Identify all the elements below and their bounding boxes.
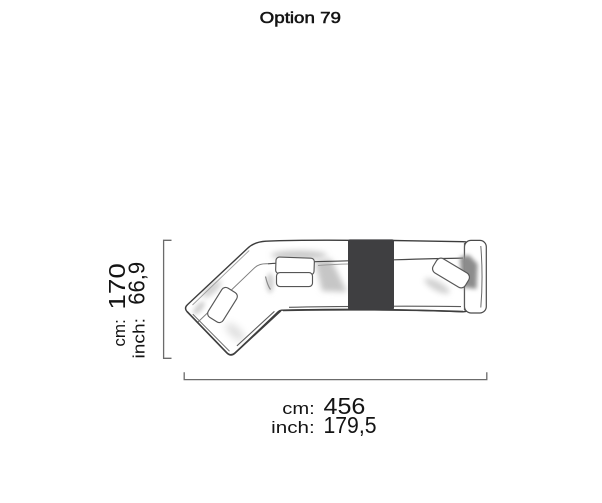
svg-text:inch:: inch: [130, 318, 149, 359]
svg-text:66,9: 66,9 [124, 262, 150, 305]
svg-text:cm:: cm: [282, 399, 315, 418]
svg-text:cm:: cm: [110, 319, 129, 346]
svg-text:Option 79: Option 79 [260, 10, 342, 27]
svg-text:inch:: inch: [271, 418, 315, 437]
svg-text:179,5: 179,5 [324, 412, 377, 438]
